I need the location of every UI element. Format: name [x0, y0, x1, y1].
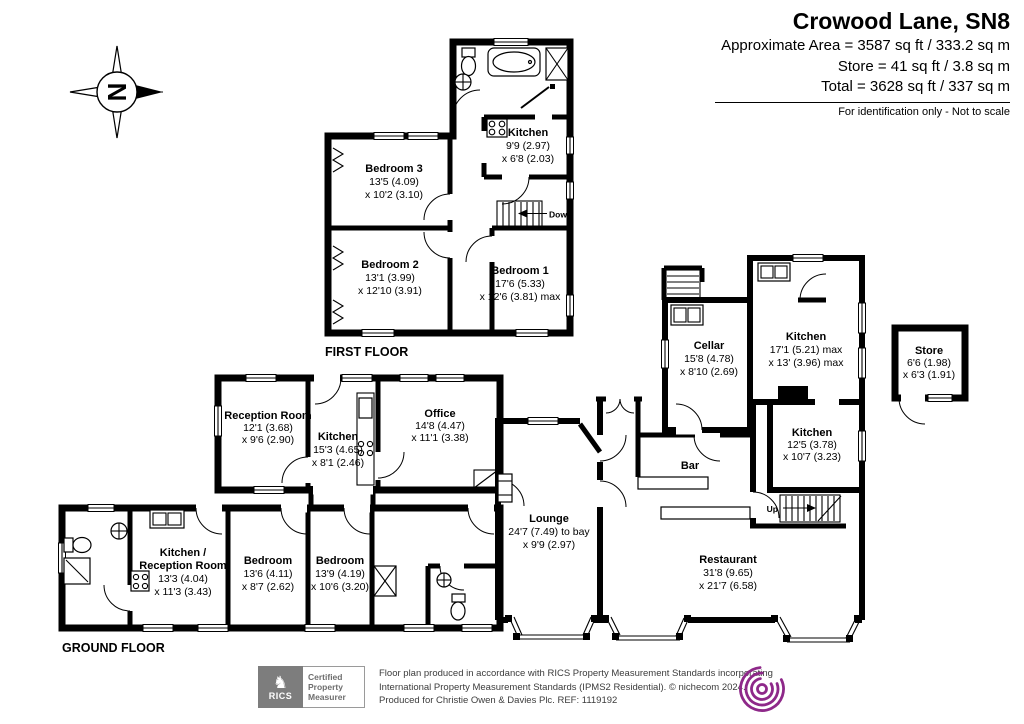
room-label: Reception Room	[224, 410, 312, 422]
room-dim: x 10'7 (3.23)	[783, 451, 841, 463]
header-divider	[715, 102, 1010, 103]
page-title: Crowood Lane, SN8	[715, 8, 1010, 34]
disclaimer-line-2: International Property Measurement Stand…	[379, 681, 773, 695]
disclaimer-text: Floor plan produced in accordance with R…	[379, 666, 773, 708]
rics-lion-icon: ♞	[273, 674, 288, 691]
room-dim: 9'9 (2.97)	[506, 140, 550, 152]
room-label: Office	[424, 408, 455, 420]
stairs-up-arrow-icon	[807, 504, 816, 512]
room-dim: 17'1 (5.21) max	[770, 344, 843, 356]
badge-line-1: Certified	[308, 672, 364, 682]
room-label: Kitchen	[792, 427, 833, 439]
rics-label: RICS	[269, 691, 293, 701]
rics-logo: ♞ RICS	[258, 666, 303, 708]
room-label: Lounge	[529, 513, 569, 525]
room-label: Bedroom 1	[491, 265, 548, 277]
room-dim: 13'6 (4.11)	[243, 568, 292, 580]
stairs-down-label: Down	[549, 210, 572, 220]
nichecom-logo-icon	[733, 660, 791, 718]
room-label: Kitchen	[508, 127, 549, 139]
room-label: Restaurant	[699, 554, 757, 566]
room-dim: x 11'3 (3.43)	[154, 586, 211, 598]
room-label: Bar	[681, 460, 700, 472]
compass-north-label: N	[102, 83, 132, 102]
ground-floor-bays	[505, 615, 861, 642]
area-line-3: Total = 3628 sq ft / 337 sq m	[715, 79, 1010, 96]
sink-icon	[359, 398, 372, 418]
room-dim: x 21'7 (6.58)	[699, 580, 757, 592]
stairs-up-label: Up	[767, 504, 778, 514]
disclaimer-line-3: Produced for Christie Owen & Davies Plc.…	[379, 694, 773, 708]
area-line-1: Approximate Area = 3587 sq ft / 333.2 sq…	[715, 38, 1010, 55]
disclaimer-line-1: Floor plan produced in accordance with R…	[379, 667, 773, 681]
first-floor-title: FIRST FLOOR	[325, 345, 408, 359]
room-dim: x 9'6 (2.90)	[242, 434, 294, 446]
room-dim: x 10'2 (3.10)	[365, 189, 423, 201]
room-dim: x 8'10 (2.69)	[680, 366, 738, 378]
room-dim: 31'8 (9.65)	[703, 567, 753, 579]
badge-line-3: Measurer	[308, 692, 364, 702]
room-dim: x 12'6 (3.81) max	[480, 291, 562, 303]
room-label: Kitchen	[786, 331, 827, 343]
rics-certification: Certified Property Measurer	[303, 666, 365, 708]
room-label: Bedroom 3	[365, 163, 422, 175]
compass-rose: N	[70, 46, 163, 138]
room-dim: 15'8 (4.78)	[684, 353, 734, 365]
room-label: Kitchen	[318, 431, 359, 443]
footer: ♞ RICS Certified Property Measurer Floor…	[258, 666, 773, 708]
room-dim: x 6'3 (1.91)	[903, 369, 955, 381]
room-dim: x 6'8 (2.03)	[502, 153, 554, 165]
room-dim: 12'1 (3.68)	[243, 422, 293, 434]
room-label: Cellar	[694, 340, 725, 352]
room-dim: 14'8 (4.47)	[415, 420, 465, 432]
room-dim: 13'1 (3.99)	[365, 272, 415, 284]
identification-note: For identification only - Not to scale	[715, 106, 1010, 118]
room-dim: x 10'6 (3.20)	[311, 581, 369, 593]
room-label: Store	[915, 345, 943, 357]
toilet-icon	[452, 594, 465, 602]
toilet-icon	[462, 48, 475, 57]
room-label: Bedroom 2	[361, 259, 418, 271]
room-dim: 15'3 (4.65)	[313, 444, 363, 456]
room-dim: 13'9 (4.19)	[315, 568, 365, 580]
room-dim: 12'5 (3.78)	[787, 439, 837, 451]
room-dim: x 8'1 (2.46)	[312, 457, 364, 469]
room-dim: 24'7 (7.49) to bay	[508, 526, 590, 538]
room-dim: 13'3 (4.04)	[158, 573, 208, 585]
room-dim: x 9'9 (2.97)	[523, 539, 575, 551]
room-dim: x 12'10 (3.91)	[358, 285, 422, 297]
room-dim: 17'6 (5.33)	[495, 278, 545, 290]
room-label: Bedroom	[316, 555, 365, 567]
header: Crowood Lane, SN8 Approximate Area = 358…	[715, 8, 1010, 118]
area-line-2: Store = 41 sq ft / 3.8 sq m	[715, 59, 1010, 76]
room-dim: x 8'7 (2.62)	[242, 581, 294, 593]
fireplace	[498, 474, 512, 502]
room-dim: x 11'1 (3.38)	[411, 432, 468, 444]
bar-counter	[638, 477, 708, 489]
room-label: Reception Room	[139, 560, 227, 572]
room-dim: x 13' (3.96) max	[769, 357, 845, 369]
badge-line-2: Property	[308, 682, 364, 692]
ground-floor-title: GROUND FLOOR	[62, 641, 165, 655]
room-label: Bedroom	[244, 555, 293, 567]
bar-counter	[661, 507, 750, 519]
rics-badge: ♞ RICS Certified Property Measurer	[258, 666, 365, 708]
room-label: Kitchen /	[160, 547, 206, 559]
room-dim: 13'5 (4.09)	[369, 176, 419, 188]
room-dim: 6'6 (1.98)	[907, 357, 951, 369]
first-floor-plan: Down Kitchen 9'9 (2.97) x 6'8 (2.03) Bed…	[325, 39, 574, 360]
toilet-icon	[64, 538, 73, 552]
